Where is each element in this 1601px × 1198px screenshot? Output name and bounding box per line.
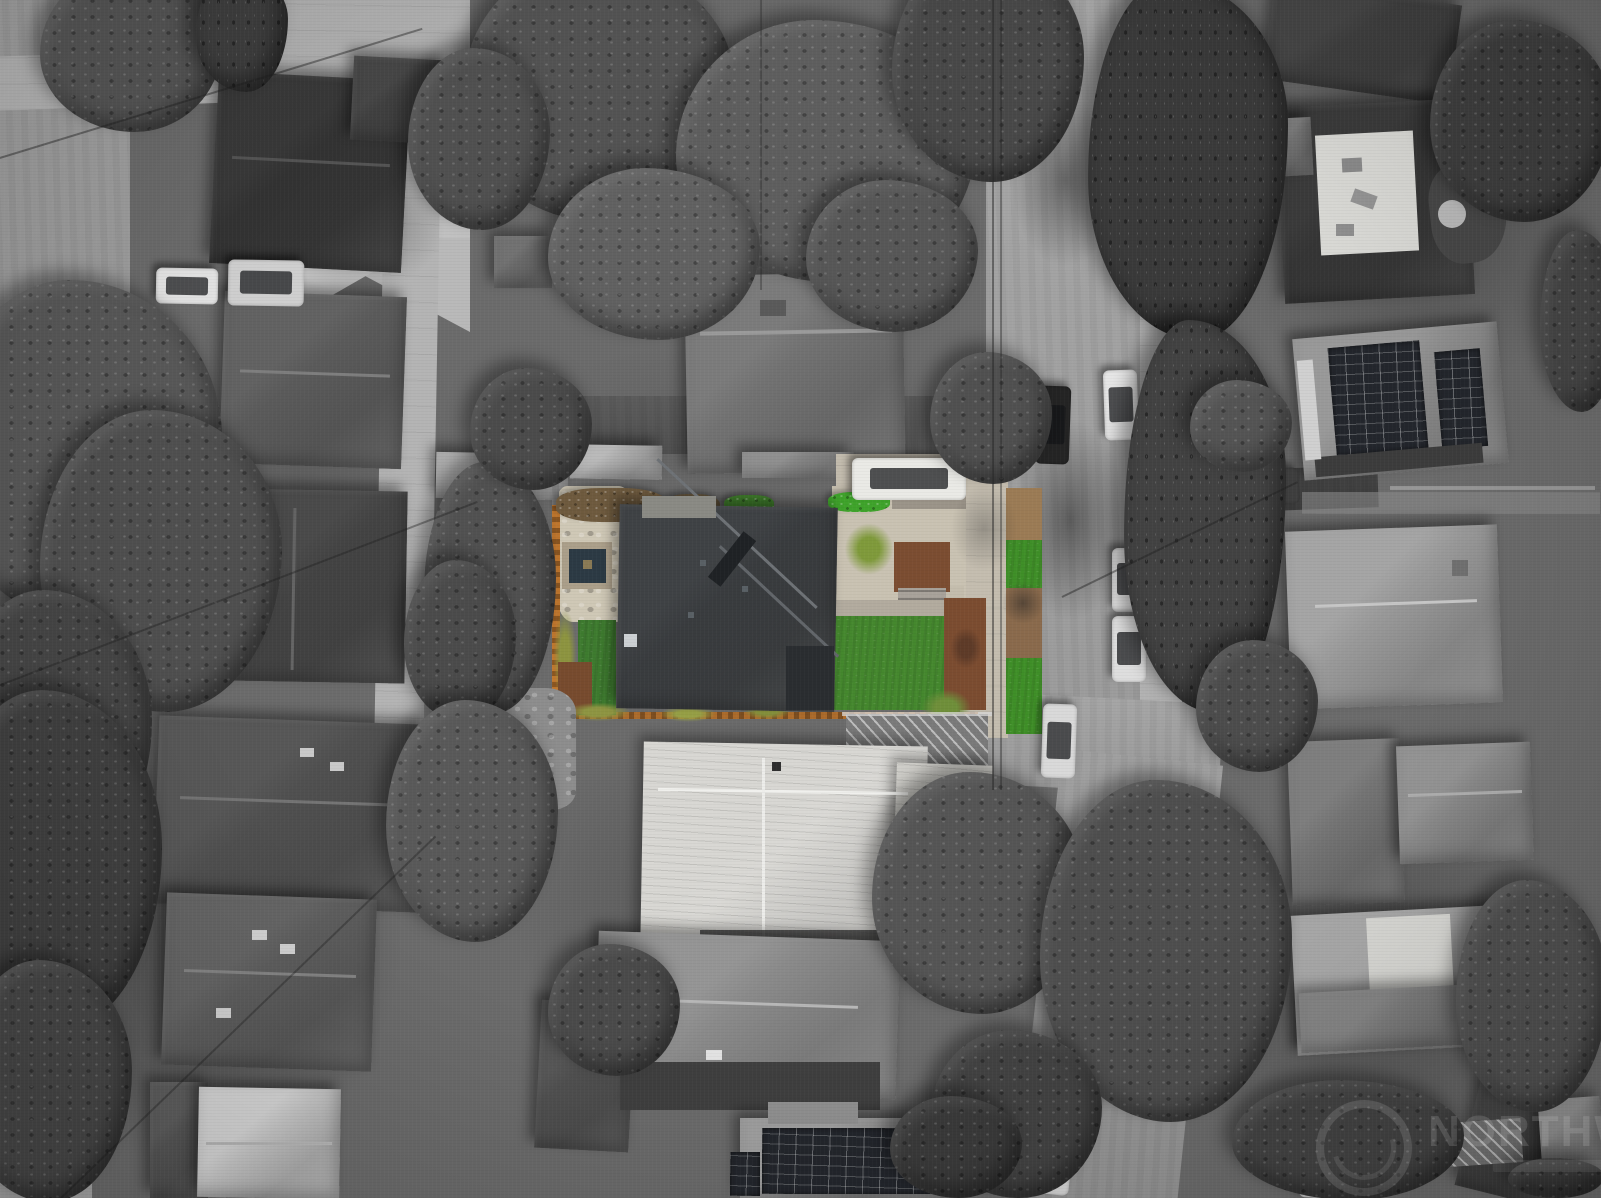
photographer-watermark: NORTHWEST (1316, 1100, 1601, 1196)
garden-bush (838, 516, 900, 582)
tree-canopy (1430, 20, 1601, 222)
tree-canopy (890, 1096, 1022, 1198)
skylight (252, 930, 267, 940)
white-car (156, 267, 219, 304)
camper-van (228, 259, 305, 306)
shrub-se-dark (946, 622, 986, 674)
roof-vent (742, 586, 748, 592)
white-pickup (1041, 703, 1078, 778)
tree-canopy (1456, 880, 1601, 1112)
house-roof (219, 291, 407, 469)
deck-rail (842, 712, 992, 716)
solar-array (1434, 348, 1488, 450)
dormer (760, 300, 786, 316)
house-roof-se (1287, 738, 1405, 906)
tree-canopy (806, 180, 978, 332)
garage-roof (494, 236, 552, 288)
chimney (1452, 560, 1468, 576)
roof-vent (688, 612, 694, 618)
camera-aperture-ring-icon (1316, 1100, 1412, 1196)
garden-fence-line (1390, 486, 1595, 490)
house-roof-se (1396, 742, 1534, 865)
tree-canopy (1190, 380, 1292, 472)
skylight (216, 1008, 231, 1018)
porch-north (642, 496, 716, 518)
roof-vent (700, 560, 706, 566)
watermark-text-block: NORTHWEST (1428, 1110, 1601, 1172)
antenna (772, 762, 781, 771)
path-right-mid (1302, 492, 1600, 514)
tree-canopy (930, 352, 1052, 484)
skylight (706, 1050, 722, 1060)
tree-canopy (1196, 640, 1318, 772)
tree-canopy (404, 560, 516, 722)
tree-canopy (408, 48, 550, 230)
solar-array (1327, 340, 1428, 456)
strip-grass (1006, 658, 1042, 734)
aerial-photo: NORTHWEST (0, 0, 1601, 1198)
chimney (624, 634, 637, 647)
roof-entry-notch (786, 646, 834, 710)
powerline (1000, 0, 1002, 790)
skylight (330, 762, 344, 771)
aerial-photo-canvas (0, 0, 1601, 1198)
stone-path (834, 600, 962, 616)
roof-ridge (762, 758, 765, 946)
tree-canopy (470, 368, 592, 490)
deck-furniture (1336, 224, 1354, 236)
powerline (760, 0, 762, 290)
house-roof (161, 892, 377, 1071)
deck-furniture (1342, 157, 1363, 172)
skylight (280, 944, 295, 954)
skylight (300, 748, 314, 757)
tree-canopy (548, 168, 760, 340)
tree-canopy (548, 944, 680, 1076)
fountain (583, 560, 592, 569)
powerline (992, 0, 994, 790)
driveway-shadow (938, 468, 1030, 588)
roof-ridge (206, 1142, 332, 1145)
watermark-text: NORTHWEST (1428, 1110, 1601, 1154)
solar-array (730, 1152, 760, 1196)
watermark-tagline-bar (1493, 1160, 1601, 1172)
turret-hot-tub (1438, 200, 1466, 228)
hip-house-east (1285, 524, 1503, 709)
rooftop-structure (768, 1102, 858, 1124)
white-gable (1366, 914, 1454, 996)
tree-canopy (386, 700, 558, 942)
